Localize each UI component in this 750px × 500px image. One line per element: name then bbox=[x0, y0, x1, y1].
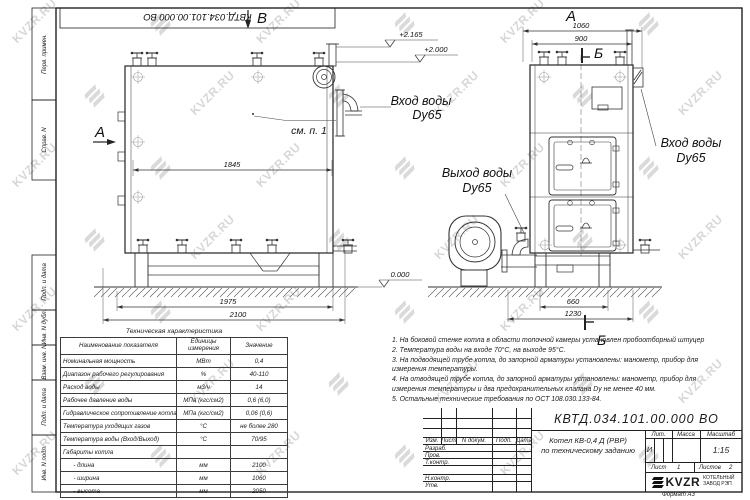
row-utv: Утв. bbox=[425, 483, 439, 489]
company-name: KVZR bbox=[666, 475, 701, 489]
cut-b-top-label: Б bbox=[594, 45, 603, 61]
spec-cell: % bbox=[177, 368, 231, 381]
spec-row: - ширинамм1060 bbox=[61, 472, 288, 485]
spec-cell: - длина bbox=[61, 459, 177, 472]
company-subtitle-line2: ЗАВОД РЭП bbox=[703, 482, 734, 488]
spec-cell: 40-110 bbox=[231, 368, 288, 381]
frame-label-sprav: Справ. N bbox=[42, 127, 48, 153]
spec-cell: °С bbox=[177, 420, 231, 433]
note-item: 1. На боковой стенке котла в области топ… bbox=[392, 336, 730, 345]
spec-row: Диапазон рабочего регулирования%40-110 bbox=[61, 368, 288, 381]
frame-label-podp1: Подп. и дата bbox=[42, 263, 48, 301]
level-2165: +2.165 bbox=[399, 30, 423, 39]
spec-header-cell: Наименование показателя bbox=[61, 338, 177, 355]
extension-lines bbox=[103, 27, 642, 324]
spec-cell: МПа (кгс/см2) bbox=[177, 394, 231, 407]
spec-cell: м3/ч bbox=[177, 381, 231, 394]
upper-furnace-door bbox=[549, 137, 619, 195]
drawing-sheet: KVZR.RUKVZR.RUKVZR.RUKVZR.RUKVZR.RUKVZR.… bbox=[0, 0, 750, 500]
spec-cell bbox=[177, 446, 231, 459]
inlet-flange bbox=[633, 68, 643, 87]
frame-label-inv-podl: Инв. N подл. bbox=[42, 445, 48, 480]
col-ndoc: N докум. bbox=[456, 438, 492, 444]
view-b-label: В bbox=[257, 10, 267, 27]
sheets-label: Листов bbox=[699, 465, 721, 471]
dimension-lines bbox=[103, 29, 642, 321]
sheet-value: 1 bbox=[677, 465, 680, 471]
manometer-gauge bbox=[313, 66, 335, 88]
spec-table: Техническая характеристика Наименование … bbox=[60, 328, 288, 498]
valves bbox=[131, 51, 652, 253]
spec-cell: Температура уходящих газов bbox=[61, 420, 177, 433]
spec-cell: Температура воды (Вход/Выход) bbox=[61, 433, 177, 446]
spec-cell: Расход воды bbox=[61, 381, 177, 394]
level-0000: 0.000 bbox=[391, 270, 411, 279]
spec-row: Гидравлическое сопротивление котлаМПа (к… bbox=[61, 407, 288, 420]
spec-cell: МВт bbox=[177, 355, 231, 368]
lit-value: И bbox=[645, 446, 654, 454]
format-label: Формат А3 bbox=[662, 492, 695, 498]
lower-furnace-door bbox=[549, 200, 619, 251]
row-prov: Пров. bbox=[425, 453, 441, 459]
spec-header-cell: Единицы измерения bbox=[177, 338, 231, 355]
spec-cell: Габариты котла bbox=[61, 446, 177, 459]
note-item: 4. На отводящей трубе котла, до запорной… bbox=[392, 375, 730, 393]
spec-row: - высотамм2050 bbox=[61, 485, 288, 498]
product-name-line1: Котел КВ-0,4 Д (РВР) bbox=[531, 436, 645, 446]
spec-table-title: Техническая характеристика bbox=[60, 328, 288, 335]
inlet-left-dn: Dy65 bbox=[412, 108, 441, 122]
ground-hatching bbox=[94, 287, 662, 297]
outlet-label: Выход воды bbox=[442, 166, 512, 180]
dim-900: 900 bbox=[575, 34, 588, 43]
spec-cell: 70/95 bbox=[231, 433, 288, 446]
product-name-line2: по техническому заданию bbox=[531, 446, 645, 456]
dim-1230: 1230 bbox=[565, 309, 583, 318]
spec-cell: мм bbox=[177, 472, 231, 485]
cut-a-label: А bbox=[94, 124, 105, 141]
spec-cell: мм bbox=[177, 459, 231, 472]
company-logo: KVZR КОТЕЛЬНЫЙ ЗАВОД РЭП bbox=[645, 472, 742, 492]
spec-cell: МПа (кгс/см2) bbox=[177, 407, 231, 420]
spec-row: Расход водым3/ч14 bbox=[61, 381, 288, 394]
blower-fan bbox=[449, 216, 537, 286]
spec-cell: 1060 bbox=[231, 472, 288, 485]
row-tkontr: Т.контр. bbox=[425, 460, 449, 466]
spec-row: - длинамм2100 bbox=[61, 459, 288, 472]
level-2000: +2.000 bbox=[424, 45, 448, 54]
scale-value: 1:15 bbox=[700, 446, 742, 455]
dim-1060: 1060 bbox=[573, 21, 591, 30]
spec-cell: °С bbox=[177, 433, 231, 446]
spec-table-grid: Наименование показателяЕдиницы измерения… bbox=[60, 337, 288, 498]
note-item: 3. На подводящей трубе котла, до запорно… bbox=[392, 356, 730, 374]
sheet-label: Лист bbox=[651, 465, 666, 471]
row-razrab: Разраб. bbox=[425, 446, 447, 452]
spec-header-row: Наименование показателяЕдиницы измерения… bbox=[61, 338, 288, 355]
spec-header-cell: Значение bbox=[231, 338, 288, 355]
frame-label-podp2: Подп. и дата bbox=[42, 388, 48, 426]
doc-number: КВТД.034.101.00.000 ВО bbox=[531, 410, 742, 428]
spec-cell bbox=[231, 446, 288, 459]
title-block: КВТД.034.101.00.000 ВО Котел КВ-0,4 Д (Р… bbox=[423, 408, 742, 492]
scale-label: Масштаб bbox=[700, 432, 742, 438]
spec-cell: мм bbox=[177, 485, 231, 498]
note-item: 5. Остальные технические требования по О… bbox=[392, 395, 730, 404]
frame-label-perv: Перв. примен. bbox=[42, 34, 48, 74]
frame-label-vzam: Взам. инв. N bbox=[42, 344, 48, 380]
stamp-doc-number: КВТД.034.101.00.000 ВО bbox=[143, 11, 252, 22]
dim-1975: 1975 bbox=[220, 297, 238, 306]
lit-label: Лит. bbox=[645, 432, 672, 438]
col-podp: Подп. bbox=[492, 438, 516, 444]
spec-row: Температура уходящих газов°Сне более 280 bbox=[61, 420, 288, 433]
kvzr-logo-icon bbox=[653, 475, 663, 488]
dim-1845: 1845 bbox=[224, 160, 242, 169]
col-izm: Изм. bbox=[423, 438, 441, 444]
leader-lines bbox=[254, 40, 656, 287]
spec-row: Температура воды (Вход/Выход)°С70/95 bbox=[61, 433, 288, 446]
inlet-right-dn: Dy65 bbox=[676, 151, 705, 165]
spec-cell: не более 280 bbox=[231, 420, 288, 433]
datum-crosshairs bbox=[131, 70, 627, 252]
dim-660: 660 bbox=[567, 297, 580, 306]
spec-cell: Гидравлическое сопротивление котла bbox=[61, 407, 177, 420]
inlet-elbow bbox=[335, 90, 362, 136]
technical-notes: 1. На боковой стенке котла в области топ… bbox=[392, 336, 730, 405]
dim-2100: 2100 bbox=[229, 310, 248, 319]
note-item: 2. Температура воды на входе 70°С, на вы… bbox=[392, 346, 730, 355]
spec-cell: - высота bbox=[61, 485, 177, 498]
outlet-dn: Dy65 bbox=[462, 181, 491, 195]
mass-label: Масса bbox=[672, 432, 700, 438]
sheets-value: 2 bbox=[729, 465, 732, 471]
spec-cell: 2100 bbox=[231, 459, 288, 472]
spec-cell: 0,06 (0,6) bbox=[231, 407, 288, 420]
boiler-front-view bbox=[449, 30, 660, 287]
spec-row: Рабочее давление водыМПа (кгс/см2)0,6 (6… bbox=[61, 394, 288, 407]
product-name: Котел КВ-0,4 Д (РВР) по техническому зад… bbox=[531, 436, 645, 457]
col-data: Дата bbox=[516, 438, 531, 444]
spec-cell: Номинальная мощность bbox=[61, 355, 177, 368]
col-list: Лист bbox=[441, 438, 456, 444]
spec-cell: 0,6 (6,0) bbox=[231, 394, 288, 407]
spec-cell: 0,4 bbox=[231, 355, 288, 368]
see-note-label: см. п. 1 bbox=[291, 125, 327, 137]
spec-cell: Рабочее давление воды bbox=[61, 394, 177, 407]
spec-cell: - ширина bbox=[61, 472, 177, 485]
company-subtitle: КОТЕЛЬНЫЙ ЗАВОД РЭП bbox=[703, 476, 734, 488]
row-nkontr: Н.контр. bbox=[425, 476, 450, 482]
spec-row: Номинальная мощностьМВт0,4 bbox=[61, 355, 288, 368]
spec-row: Габариты котла bbox=[61, 446, 288, 459]
spec-cell: 14 bbox=[231, 381, 288, 394]
spec-cell: Диапазон рабочего регулирования bbox=[61, 368, 177, 381]
inlet-left-label: Вход воды bbox=[391, 94, 452, 108]
spec-cell: 2050 bbox=[231, 485, 288, 498]
frame-label-inv-dubl: Инв. N дубл. bbox=[42, 310, 48, 345]
inlet-right-label: Вход воды bbox=[661, 136, 722, 150]
